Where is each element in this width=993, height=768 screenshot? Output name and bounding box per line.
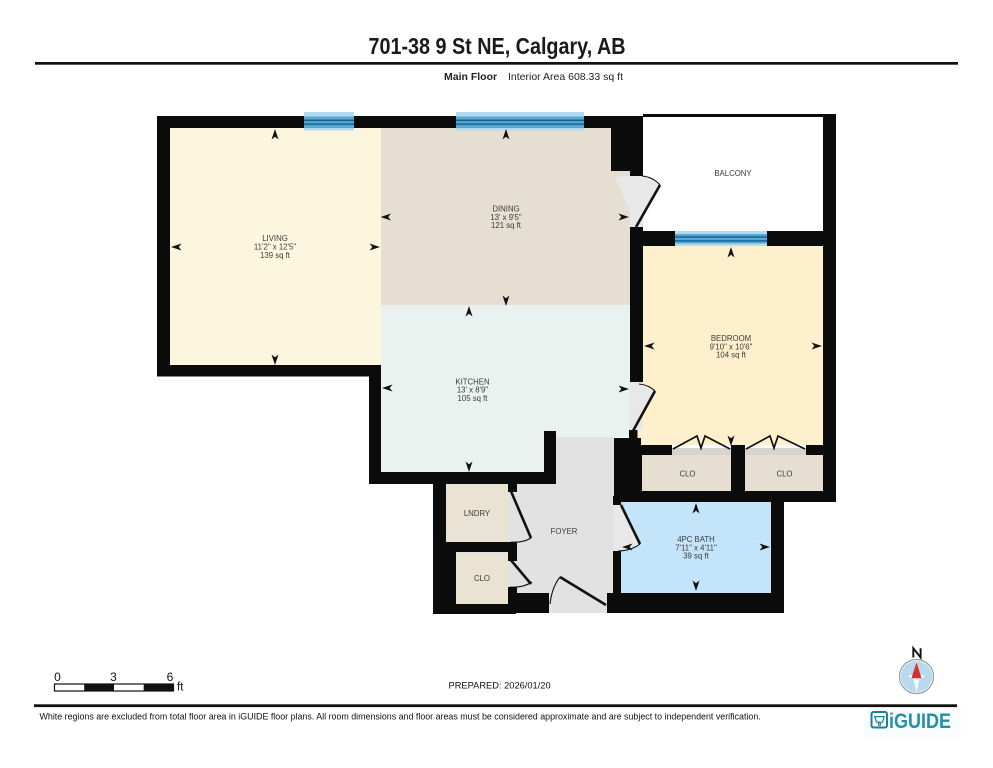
svg-text:Interior Area 608.33 sq ft: Interior Area 608.33 sq ft [508, 71, 623, 83]
svg-text:FOYER: FOYER [551, 527, 578, 536]
svg-text:ft: ft [177, 682, 184, 694]
svg-text:104 sq ft: 104 sq ft [716, 351, 747, 360]
svg-text:6: 6 [167, 670, 174, 684]
svg-text:Main Floor: Main Floor [444, 71, 497, 83]
svg-text:PREPARED: 2026/01/20: PREPARED: 2026/01/20 [449, 681, 551, 691]
svg-text:LNDRY: LNDRY [464, 509, 491, 518]
svg-text:CLO: CLO [474, 574, 490, 583]
svg-text:105 sq ft: 105 sq ft [458, 394, 489, 403]
svg-text:39 sq ft: 39 sq ft [683, 552, 709, 561]
svg-text:121 sq ft: 121 sq ft [491, 221, 522, 230]
svg-text:CLO: CLO [679, 470, 695, 479]
svg-text:iGUIDE: iGUIDE [889, 709, 951, 733]
svg-text:0: 0 [54, 670, 61, 684]
svg-text:701-38 9 St NE, Calgary, AB: 701-38 9 St NE, Calgary, AB [369, 33, 626, 59]
svg-text:139 sq ft: 139 sq ft [260, 251, 291, 260]
svg-text:White regions are excluded fro: White regions are excluded from total fl… [40, 712, 761, 722]
svg-text:3: 3 [110, 670, 117, 684]
svg-text:BALCONY: BALCONY [714, 169, 752, 178]
svg-text:CLO: CLO [776, 470, 792, 479]
